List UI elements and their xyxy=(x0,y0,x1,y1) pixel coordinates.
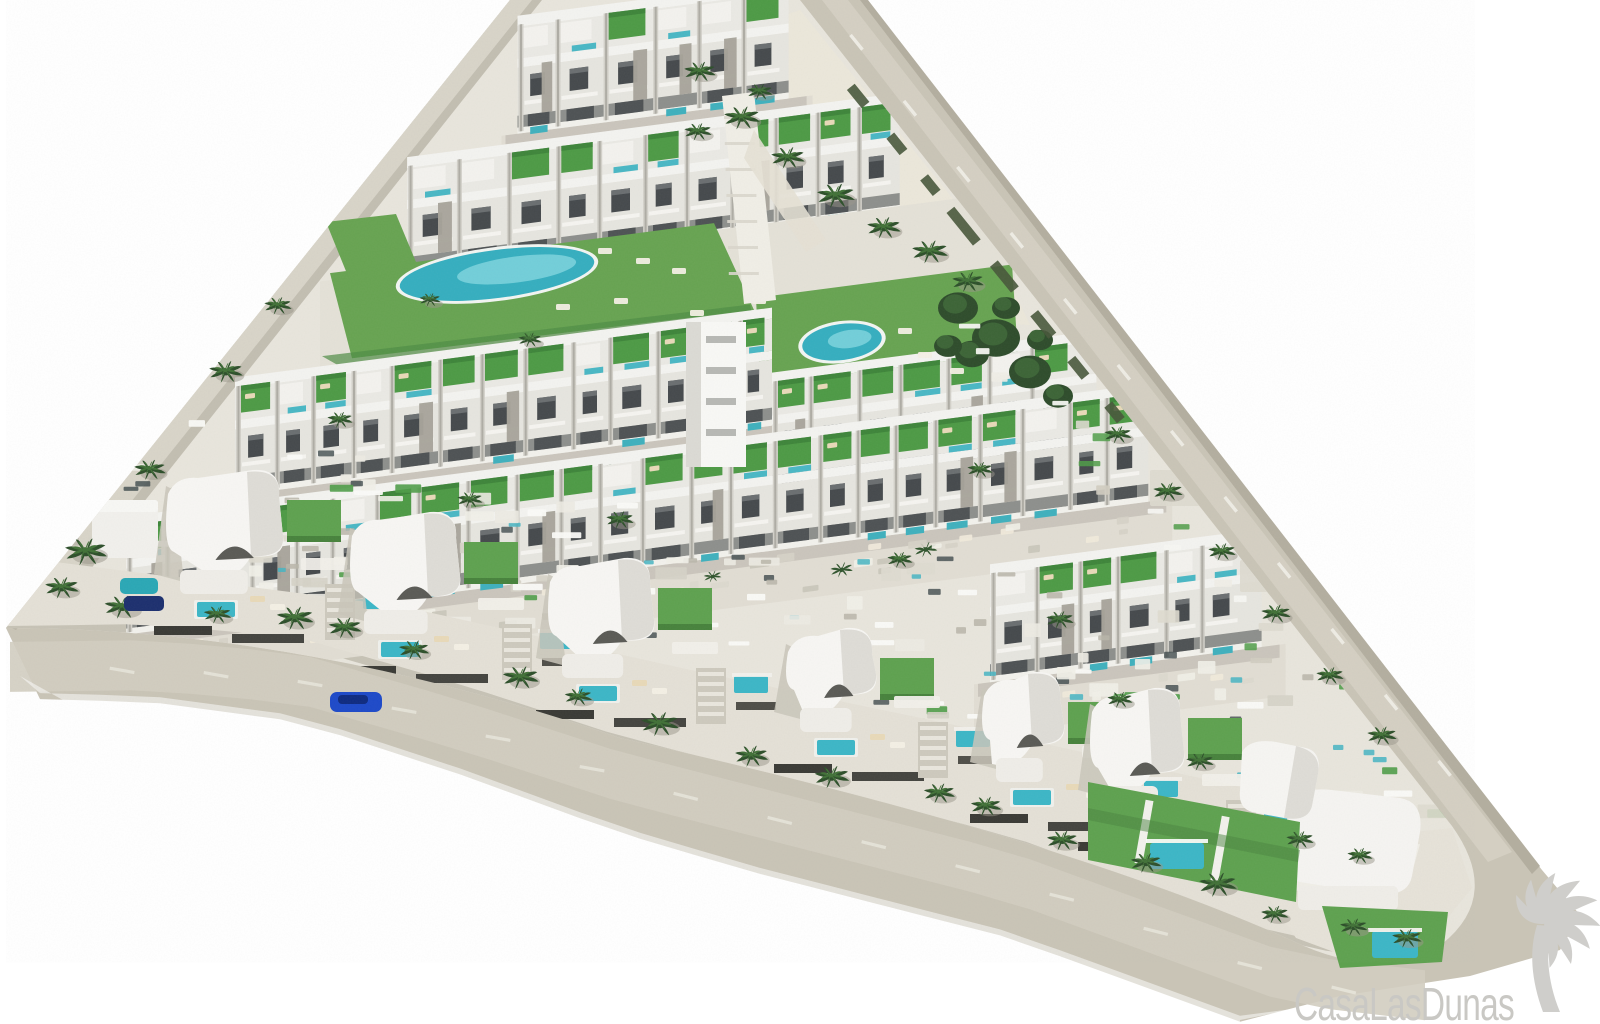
svg-text:CasaLasDunas: CasaLasDunas xyxy=(1294,978,1514,1024)
